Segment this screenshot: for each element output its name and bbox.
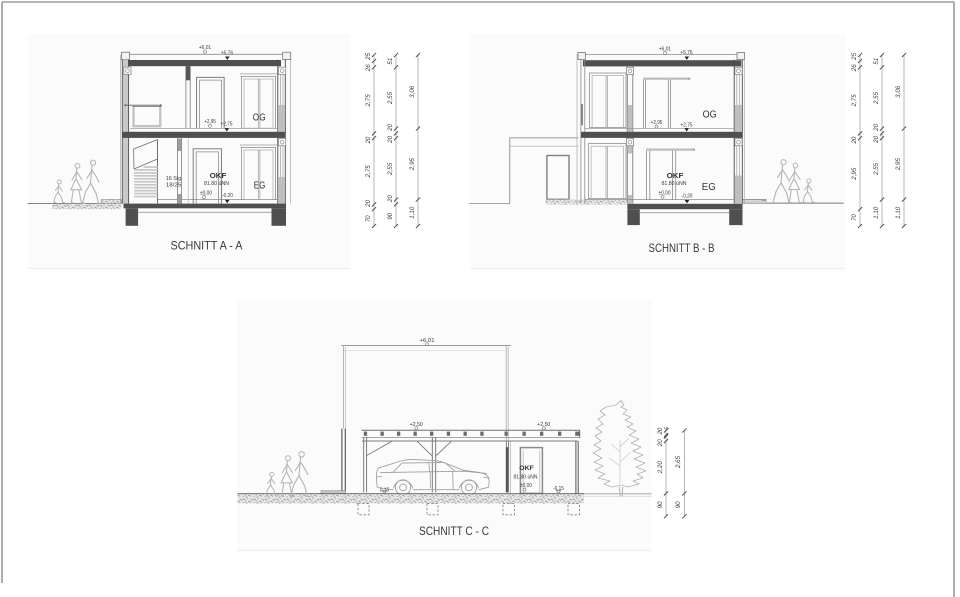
svg-text:20: 20: [873, 135, 880, 143]
svg-text:26: 26: [851, 64, 858, 72]
svg-text:2,20: 2,20: [657, 461, 664, 475]
svg-text:20: 20: [657, 439, 664, 447]
svg-text:16 Stg: 16 Stg: [166, 176, 182, 182]
svg-text:EG: EG: [254, 180, 265, 192]
svg-text:2,75: 2,75: [851, 94, 858, 108]
svg-text:SCHNITT A - A: SCHNITT A - A: [171, 239, 243, 253]
svg-text:18/25: 18/25: [166, 182, 182, 188]
svg-text:±0,00: ±0,00: [659, 190, 671, 196]
svg-text:20: 20: [873, 123, 880, 131]
svg-text:20: 20: [657, 427, 664, 435]
svg-text:-0,20: -0,20: [222, 193, 233, 199]
svg-text:70: 70: [365, 215, 372, 222]
svg-text:90: 90: [387, 212, 394, 219]
svg-text:OG: OG: [703, 109, 717, 121]
svg-text:2,95: 2,95: [409, 157, 416, 171]
svg-text:81.80 üNN: 81.80 üNN: [662, 181, 687, 187]
svg-text:20: 20: [365, 136, 372, 144]
svg-text:51: 51: [873, 58, 880, 65]
svg-text:-0,20: -0,20: [682, 193, 693, 199]
svg-text:1,10: 1,10: [409, 206, 416, 219]
svg-text:-0,15: -0,15: [553, 486, 564, 492]
svg-text:±0,00: ±0,00: [520, 483, 532, 489]
svg-text:+5,76: +5,76: [221, 51, 234, 57]
svg-text:2,95: 2,95: [851, 167, 858, 181]
svg-text:OKF: OKF: [519, 465, 534, 472]
svg-text:3,06: 3,06: [409, 85, 416, 98]
svg-text:2,55: 2,55: [873, 162, 880, 176]
svg-text:OG: OG: [253, 111, 266, 123]
svg-text:2,75: 2,75: [365, 165, 372, 179]
svg-text:2,55: 2,55: [387, 162, 394, 176]
svg-text:20: 20: [851, 136, 858, 144]
svg-text:90: 90: [657, 501, 664, 508]
svg-text:OKF: OKF: [667, 173, 684, 180]
svg-text:+2,75: +2,75: [681, 122, 693, 128]
svg-text:51: 51: [387, 58, 394, 65]
svg-text:1,10: 1,10: [895, 206, 902, 219]
svg-text:1,10: 1,10: [873, 206, 880, 219]
svg-text:90: 90: [675, 501, 682, 508]
svg-text:20: 20: [387, 123, 394, 131]
svg-text:SCHNITT C - C: SCHNITT C - C: [419, 524, 489, 538]
svg-text:25: 25: [365, 52, 372, 60]
svg-text:2,55: 2,55: [387, 91, 394, 105]
svg-text:OKF: OKF: [210, 173, 227, 180]
svg-text:2,65: 2,65: [675, 455, 682, 469]
svg-text:25: 25: [851, 52, 858, 60]
svg-text:2,95: 2,95: [895, 158, 902, 172]
svg-text:20: 20: [387, 195, 394, 203]
svg-text:±0,00: ±0,00: [200, 191, 212, 197]
svg-text:26: 26: [365, 64, 372, 72]
svg-text:81.80 üNN: 81.80 üNN: [204, 181, 229, 187]
svg-text:20: 20: [365, 199, 372, 207]
svg-text:EG: EG: [702, 181, 716, 193]
svg-text:3,06: 3,06: [895, 85, 902, 98]
svg-text:70: 70: [851, 214, 858, 221]
svg-text:81.80 üNN: 81.80 üNN: [514, 475, 538, 481]
svg-text:SCHNITT B - B: SCHNITT B - B: [649, 241, 715, 255]
svg-text:2,55: 2,55: [873, 91, 880, 105]
svg-text:+2,75: +2,75: [221, 122, 233, 128]
svg-text:2,75: 2,75: [365, 94, 372, 108]
svg-text:+5,76: +5,76: [680, 50, 693, 56]
svg-text:20: 20: [387, 135, 394, 143]
